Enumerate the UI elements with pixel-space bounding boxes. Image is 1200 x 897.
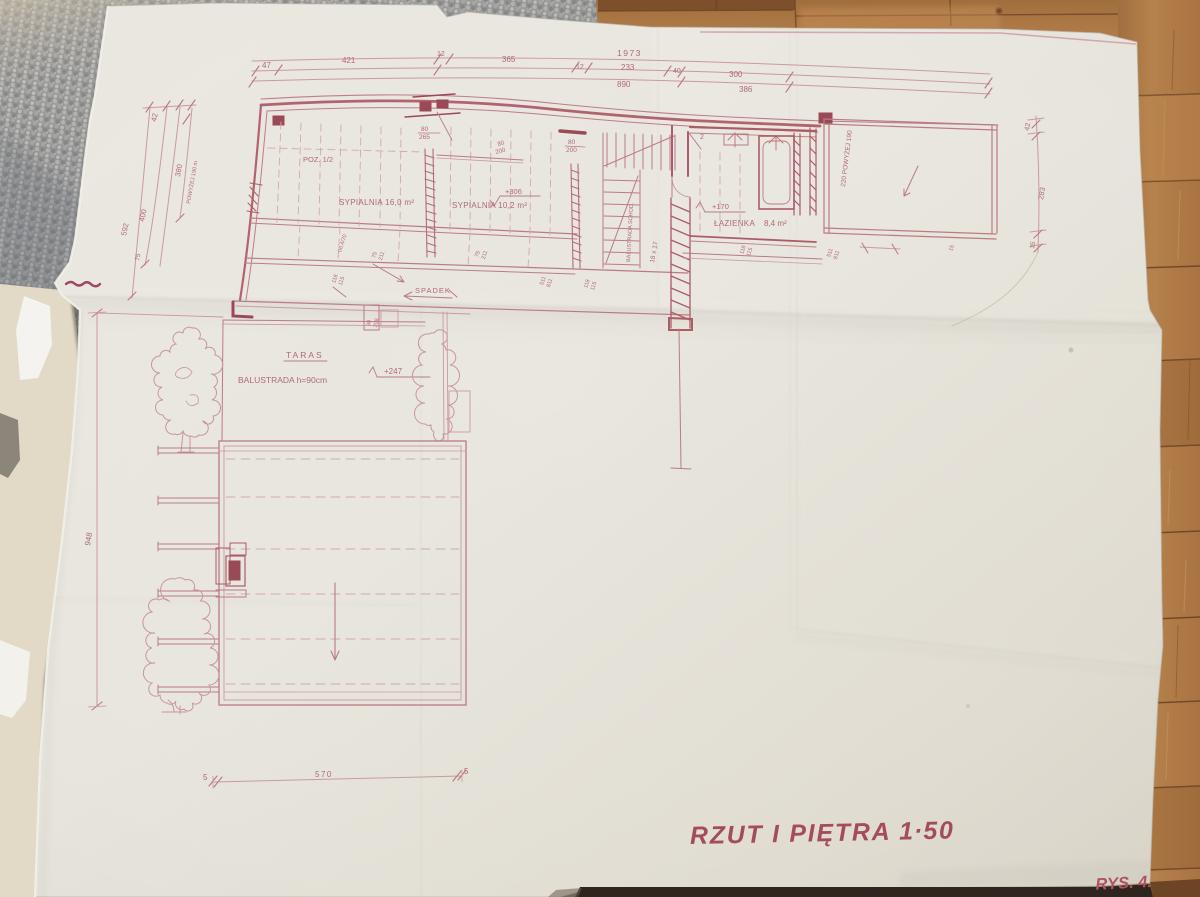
svg-text:890: 890: [617, 80, 631, 89]
svg-text:47: 47: [262, 61, 271, 70]
svg-text:570: 570: [315, 770, 333, 779]
svg-text:SYPIALNIA 16,0 m²: SYPIALNIA 16,0 m²: [339, 198, 414, 207]
svg-text:80: 80: [568, 139, 576, 146]
svg-text:12: 12: [437, 51, 445, 58]
svg-text:265: 265: [419, 134, 430, 141]
svg-text:1973: 1973: [617, 48, 642, 58]
svg-text:421: 421: [342, 56, 356, 65]
svg-text:+306: +306: [505, 187, 522, 196]
svg-text:TARAS: TARAS: [286, 350, 324, 360]
svg-text:386: 386: [739, 85, 753, 94]
svg-text:30: 30: [366, 320, 373, 327]
svg-text:SPADEK: SPADEK: [415, 286, 451, 295]
svg-text:+247: +247: [384, 367, 403, 376]
svg-text:POZ. 1/2: POZ. 1/2: [303, 155, 333, 164]
svg-text:5: 5: [203, 773, 208, 782]
svg-text:RYS. 4.: RYS. 4.: [1095, 873, 1152, 894]
svg-text:5: 5: [464, 767, 469, 776]
svg-text:300: 300: [729, 70, 743, 79]
svg-text:200: 200: [566, 147, 577, 154]
svg-text:40: 40: [673, 68, 681, 75]
svg-text:42: 42: [1024, 122, 1032, 131]
svg-text:+170: +170: [712, 202, 729, 211]
svg-text:2: 2: [700, 134, 704, 141]
svg-text:233: 233: [621, 63, 635, 72]
svg-text:365: 365: [502, 55, 516, 64]
svg-text:SYPIALNIA 10,2 m²: SYPIALNIA 10,2 m²: [452, 201, 527, 210]
svg-text:RZUT I PIĘTRA 1∙50: RZUT I PIĘTRA 1∙50: [690, 816, 955, 850]
svg-text:BALUSTRADA h=90cm: BALUSTRADA h=90cm: [238, 375, 327, 385]
svg-text:8,4 m²: 8,4 m²: [764, 219, 787, 228]
svg-text:ŁAZIENKA: ŁAZIENKA: [714, 219, 755, 228]
svg-text:12: 12: [576, 64, 584, 71]
svg-text:80: 80: [421, 126, 429, 133]
